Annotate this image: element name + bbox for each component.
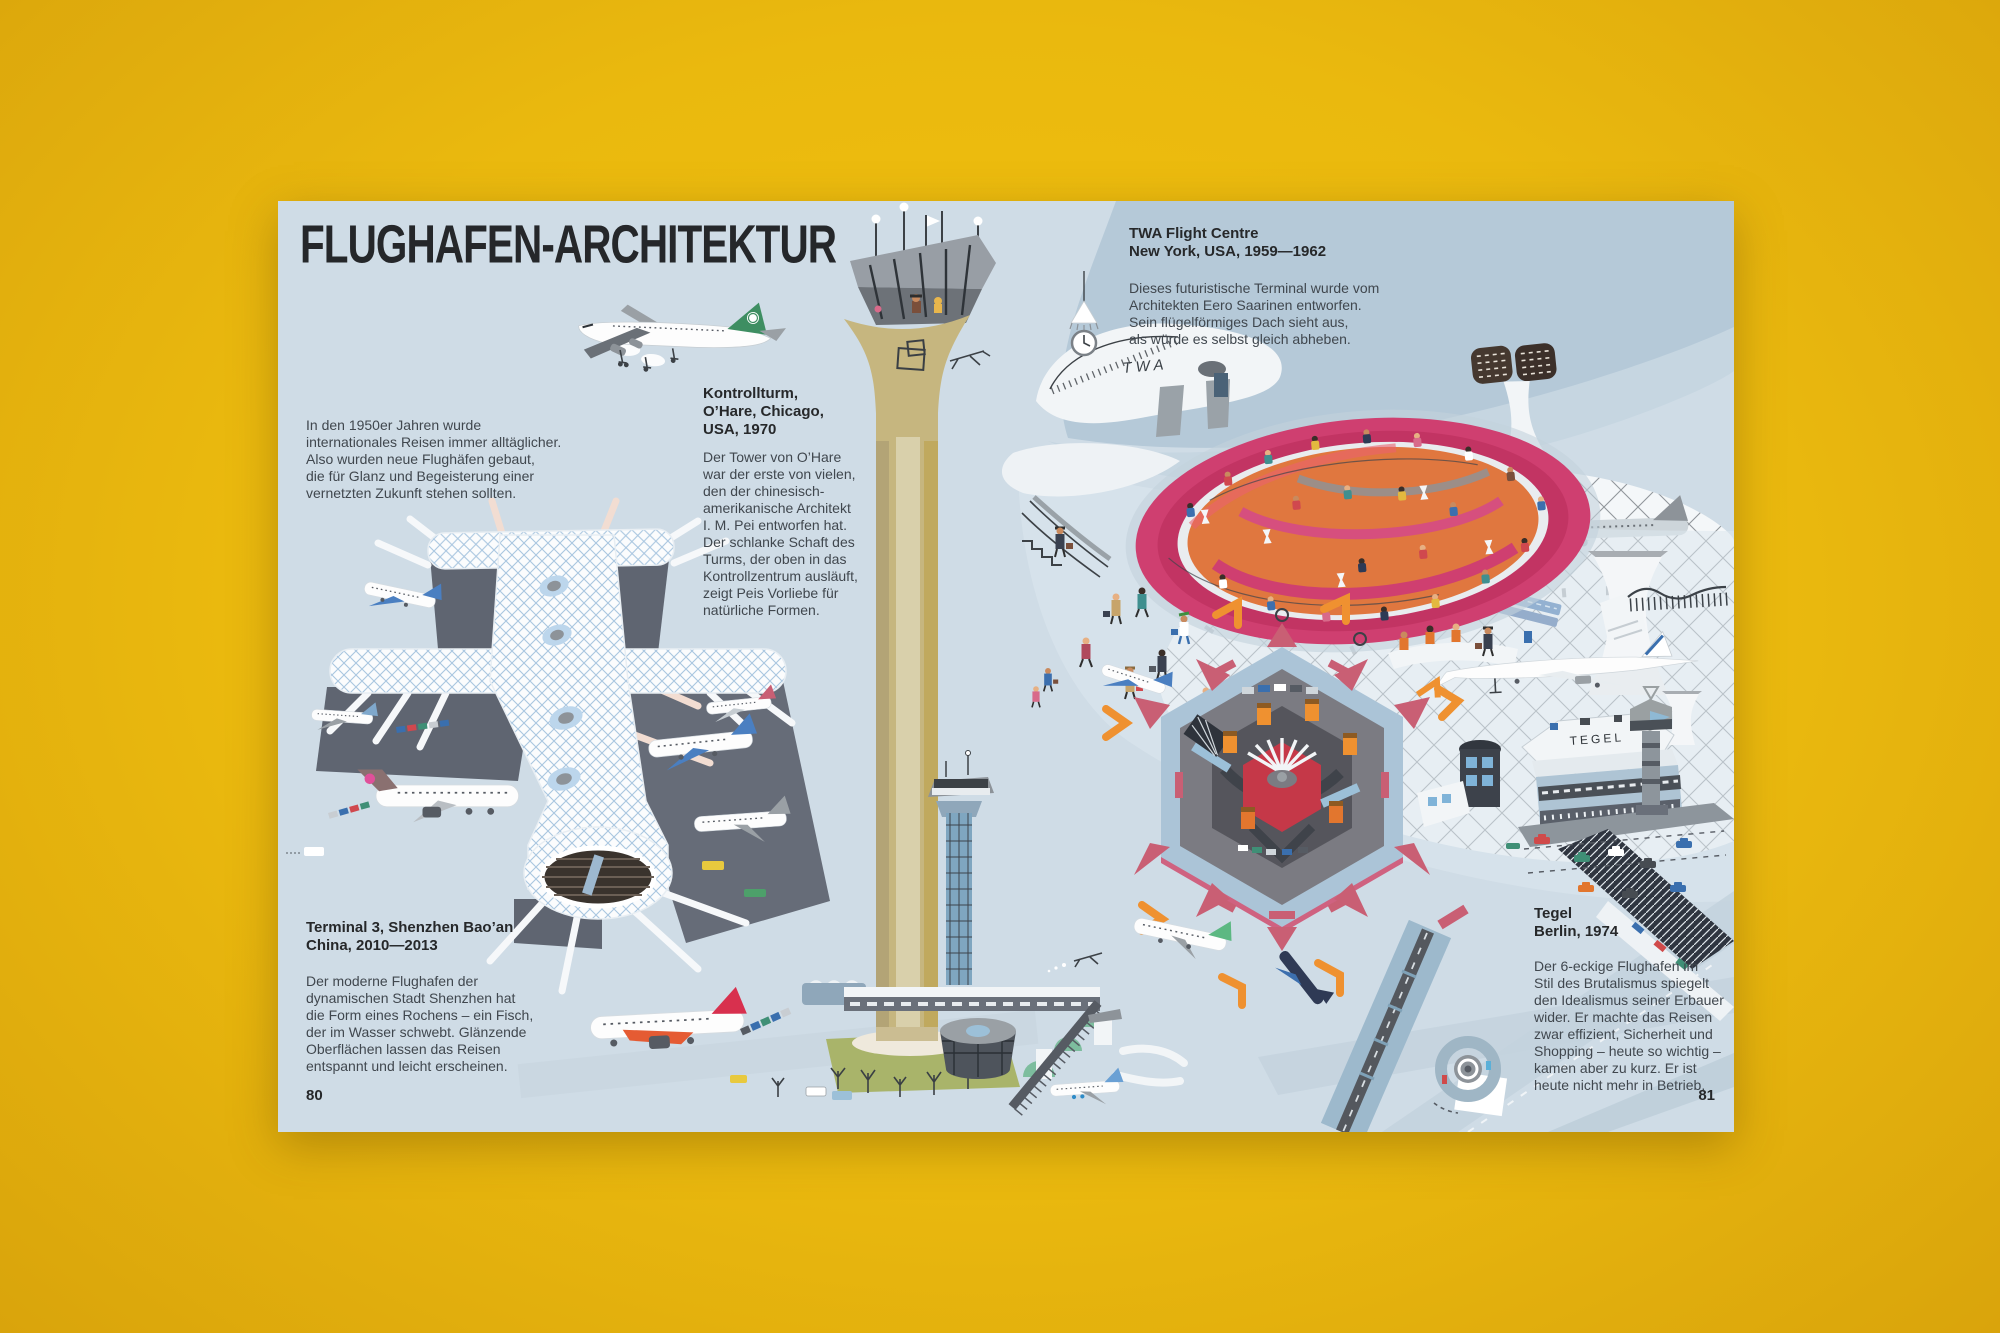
yellow-truck [702, 861, 724, 870]
page-number-right: 81 [1534, 1087, 1715, 1104]
book-spread: TWA [278, 201, 1734, 1132]
twa-heading: TWA Flight Centre New York, USA, 1959—19… [1129, 225, 1326, 261]
drum-building [940, 1018, 1016, 1079]
twa-body: Dieses futuristische Terminal wurde vom … [1129, 280, 1469, 348]
shenzhen-body: Der moderne Flughafen der dynamischen St… [306, 973, 626, 1075]
shenzhen-heading: Terminal 3, Shenzhen Bao’an China, 2010—… [306, 919, 513, 955]
tegel-plane-descending [1270, 942, 1336, 1015]
page-title: FLUGHAFEN-ARCHITEKTUR [300, 215, 836, 276]
ohare-body: Der Tower von O’Hare war der erste von v… [703, 449, 878, 619]
tegel-body: Der 6-eckige Flughafen im Stil des Bruta… [1534, 958, 1724, 1094]
ohare-heading: Kontrollturm, O’Hare, Chicago, USA, 1970 [703, 385, 824, 439]
small-plane [1049, 1067, 1125, 1108]
green-plane [574, 281, 789, 388]
buses [730, 1075, 852, 1100]
page-number-left: 80 [306, 1087, 323, 1104]
tegel-heading: Tegel Berlin, 1974 [1534, 905, 1618, 941]
intro-paragraph: In den 1950er Jahren wurde international… [306, 417, 596, 502]
ohare-tower [772, 203, 1020, 1098]
green-truck [744, 889, 766, 897]
white-van [286, 847, 324, 856]
